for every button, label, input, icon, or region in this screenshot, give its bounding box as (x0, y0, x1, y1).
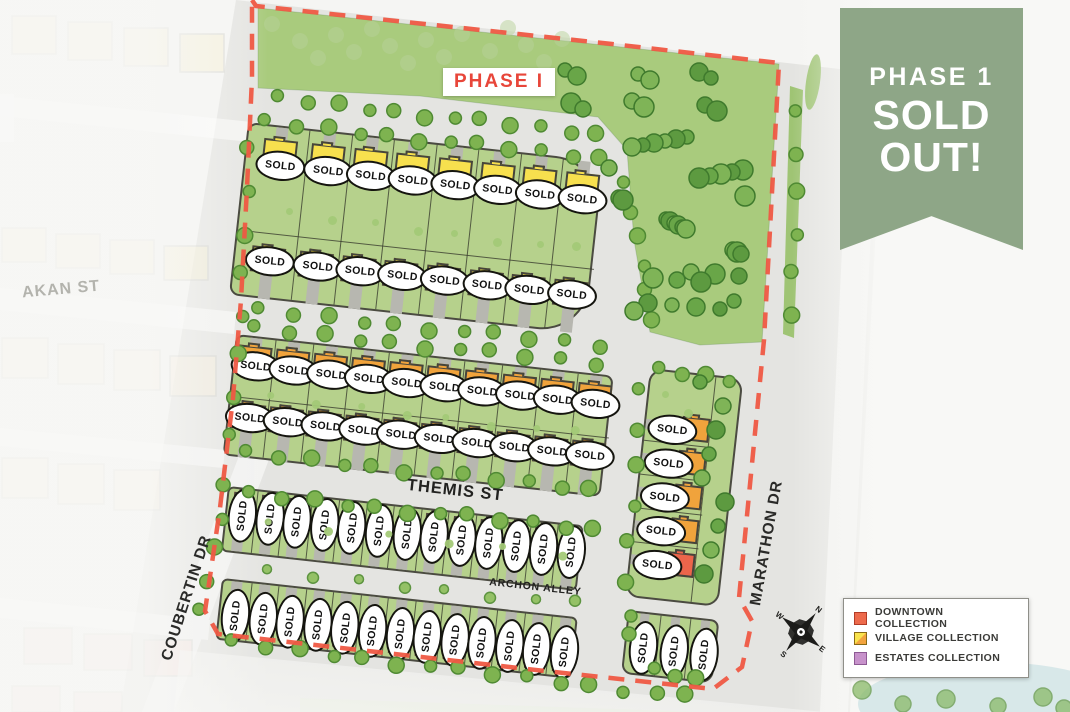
sold-badge-label: SOLD (302, 259, 334, 274)
sold-badge-label: SOLD (312, 163, 344, 178)
sold-badge-label: SOLD (461, 435, 493, 450)
sold-badge-label: SOLD (471, 278, 503, 293)
sold-badge-label: SOLD (235, 500, 250, 532)
sold-badge-label: SOLD (277, 363, 309, 378)
sold-badge-label: SOLD (283, 606, 298, 638)
sold-badge-label: SOLD (504, 388, 536, 403)
sold-badge: SOLD (472, 515, 507, 572)
sold-badge-label: SOLD (466, 384, 498, 399)
legend-label: VILLAGE COLLECTION (875, 632, 999, 644)
legend: DOWNTOWN COLLECTIONVILLAGE COLLECTIONEST… (843, 598, 1029, 678)
sold-badge-label: SOLD (355, 168, 387, 183)
sold-badge: SOLD (547, 624, 582, 681)
sold-badge-label: SOLD (502, 630, 517, 662)
sold-badge: SOLD (554, 524, 589, 581)
sold-badge-label: SOLD (420, 621, 435, 653)
downtown-archon-row: SOLDSOLDSOLDSOLDSOLDSOLDSOLDSOLDSOLDSOLD… (215, 578, 578, 679)
compass-n: N (813, 604, 823, 615)
banner-line1: PHASE 1 (869, 60, 993, 94)
sold-badge-label: SOLD (563, 536, 578, 568)
sold-badge-label: SOLD (372, 515, 387, 547)
legend-item-village: VILLAGE COLLECTION (854, 628, 1018, 648)
sold-badge-label: SOLD (542, 392, 574, 407)
sold-badge-label: SOLD (447, 624, 462, 656)
sold-badge-label: SOLD (392, 618, 407, 650)
sold-badge-label: SOLD (344, 512, 359, 544)
sold-badge-label: SOLD (580, 396, 612, 411)
sold-badge-label: SOLD (513, 282, 545, 297)
sold-badge-label: SOLD (429, 273, 461, 288)
compass-s: S (779, 649, 789, 660)
phase1-sold-out-banner: PHASE 1 SOLD OUT! (840, 8, 1023, 250)
sold-badge: SOLD (243, 244, 296, 279)
sold-badge-label: SOLD (290, 506, 305, 538)
sold-badge-label: SOLD (365, 615, 380, 647)
downtown-swatch (854, 612, 867, 625)
marathon-court-block: SOLDSOLDSOLDSOLDSOLD (625, 368, 744, 607)
sold-badge: SOLD (687, 626, 722, 683)
village-mid-block: SOLDSOLDSOLDSOLDSOLDSOLDSOLDSOLDSOLDSOLD… (223, 334, 614, 497)
sold-badge-label: SOLD (641, 557, 673, 572)
sold-badge-label: SOLD (228, 600, 243, 632)
sold-badge-label: SOLD (574, 448, 606, 463)
sold-badge-label: SOLD (315, 367, 347, 382)
sold-badge: SOLD (218, 587, 253, 644)
sold-badge-label: SOLD (536, 444, 568, 459)
sold-badge-label: SOLD (353, 371, 385, 386)
sold-badge-label: SOLD (399, 518, 414, 550)
legend-item-downtown: DOWNTOWN COLLECTION (854, 608, 1018, 628)
downtown-themis-row: SOLDSOLDSOLDSOLDSOLDSOLDSOLDSOLDSOLDSOLD… (221, 486, 584, 591)
sold-badge-label: SOLD (653, 456, 685, 471)
sold-badge-label: SOLD (310, 609, 325, 641)
legend-item-estates: ESTATES COLLECTION (854, 648, 1018, 668)
legend-label: DOWNTOWN COLLECTION (875, 606, 1018, 630)
sold-badge-label: SOLD (656, 422, 688, 437)
sold-badge-label: SOLD (254, 254, 286, 269)
sold-badge-label: SOLD (645, 524, 677, 539)
sold-badge: SOLD (225, 487, 260, 544)
compass-rose: N E S W (770, 600, 832, 664)
village-north-block: SOLDSOLDSOLDSOLDSOLDSOLDSOLDSOLDSOLDSOLD… (229, 122, 604, 334)
sold-badge-label: SOLD (428, 380, 460, 395)
site-plan-map: SOLDSOLDSOLDSOLDSOLDSOLDSOLDSOLDSOLDSOLD… (0, 0, 1070, 712)
sold-badge: SOLD (410, 608, 445, 665)
sold-badge-label: SOLD (234, 410, 266, 425)
banner-line3: OUT! (879, 136, 983, 178)
sold-badge: SOLD (563, 438, 616, 473)
sold-badge-label: SOLD (317, 509, 332, 541)
sold-badge-label: SOLD (482, 182, 514, 197)
sold-badge: SOLD (362, 502, 397, 559)
sold-badge-label: SOLD (262, 503, 277, 535)
sold-badge-label: SOLD (309, 419, 341, 434)
estates-swatch (854, 652, 867, 665)
sold-badge: SOLD (254, 148, 307, 183)
sold-badge: SOLD (526, 521, 561, 578)
compass-w: W (774, 610, 786, 622)
sold-badge-label: SOLD (338, 612, 353, 644)
sold-badge-label: SOLD (344, 264, 376, 279)
sold-badge-label: SOLD (498, 440, 530, 455)
sold-badge-label: SOLD (347, 423, 379, 438)
sold-badge-label: SOLD (557, 636, 572, 668)
sold-badge-label: SOLD (524, 187, 556, 202)
sold-badge-label: SOLD (636, 632, 651, 664)
southeast-mini-block: SOLDSOLDSOLD (621, 610, 719, 684)
village-swatch (854, 632, 867, 645)
sold-badge-label: SOLD (454, 524, 469, 556)
sold-badge-label: SOLD (385, 427, 417, 442)
sold-badge-label: SOLD (387, 268, 419, 283)
sold-badge: SOLD (417, 509, 452, 566)
sold-badge-label: SOLD (255, 603, 270, 635)
sold-badge-label: SOLD (427, 521, 442, 553)
phase-label-box: PHASE I (443, 68, 555, 96)
sold-badge-label: SOLD (697, 639, 712, 671)
sold-badge-label: SOLD (566, 191, 598, 206)
sold-badge-label: SOLD (481, 527, 496, 559)
sold-badge-label: SOLD (649, 490, 681, 505)
sold-badge-label: SOLD (556, 287, 588, 302)
sold-badge-label: SOLD (474, 627, 489, 659)
sold-badge-label: SOLD (397, 173, 429, 188)
sold-badge-label: SOLD (391, 375, 423, 390)
sold-badge: SOLD (355, 602, 390, 659)
sold-badge-label: SOLD (240, 359, 272, 374)
banner-line2: SOLD (873, 94, 991, 136)
sold-badge-label: SOLD (536, 533, 551, 565)
legend-label: ESTATES COLLECTION (875, 652, 1000, 664)
sold-badge-label: SOLD (666, 635, 681, 667)
sold-badge-label: SOLD (264, 158, 296, 173)
phase-label: PHASE I (454, 71, 544, 93)
sold-badge: SOLD (519, 621, 554, 678)
sold-badge: SOLD (545, 277, 598, 312)
sold-badge-label: SOLD (423, 431, 455, 446)
sold-badge-label: SOLD (529, 633, 544, 665)
sold-badge-label: SOLD (272, 415, 304, 430)
sold-badge: SOLD (556, 181, 609, 216)
sold-badge-label: SOLD (439, 177, 471, 192)
sold-badge-label: SOLD (509, 530, 524, 562)
sold-badge: SOLD (569, 386, 622, 421)
sold-badge: SOLD (465, 615, 500, 672)
